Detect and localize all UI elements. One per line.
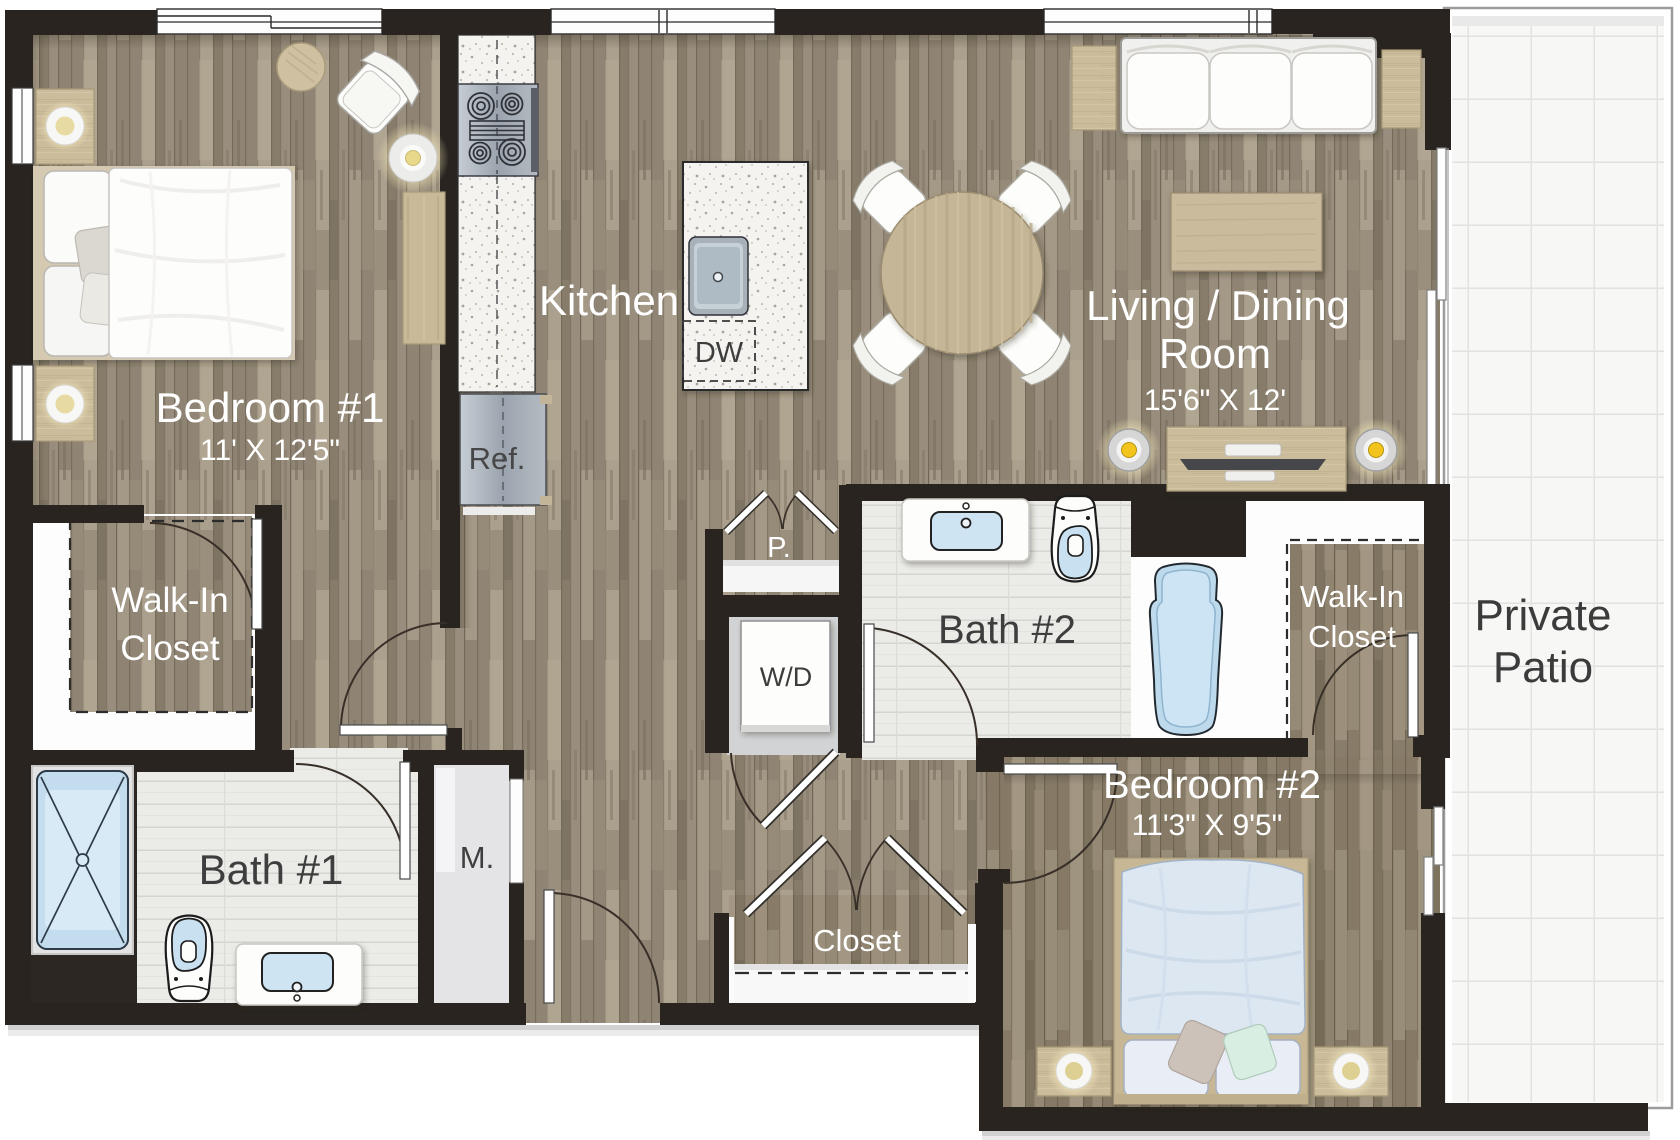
- svg-text:Walk-In: Walk-In: [111, 581, 228, 620]
- svg-text:Walk-In: Walk-In: [1300, 579, 1404, 614]
- svg-text:M.: M.: [460, 840, 494, 875]
- svg-text:Private: Private: [1475, 591, 1612, 640]
- svg-text:Patio: Patio: [1493, 643, 1593, 692]
- svg-text:Closet: Closet: [120, 629, 219, 668]
- svg-text:Living / Dining: Living / Dining: [1086, 282, 1350, 329]
- svg-text:W/D: W/D: [760, 662, 812, 692]
- svg-text:15'6" X 12': 15'6" X 12': [1144, 384, 1286, 417]
- svg-text:Closet: Closet: [813, 923, 901, 958]
- svg-text:Kitchen: Kitchen: [539, 277, 679, 324]
- svg-text:Bath #1: Bath #1: [199, 846, 344, 893]
- svg-text:Closet: Closet: [1308, 619, 1396, 654]
- svg-text:Ref.: Ref.: [469, 441, 526, 476]
- svg-text:Bath #2: Bath #2: [938, 608, 1076, 652]
- svg-text:Bedroom #1: Bedroom #1: [156, 384, 385, 431]
- svg-text:Bedroom #2: Bedroom #2: [1103, 763, 1321, 807]
- svg-text:11' X 12'5": 11' X 12'5": [200, 434, 340, 467]
- svg-text:11'3" X 9'5": 11'3" X 9'5": [1132, 809, 1283, 842]
- svg-text:P.: P.: [767, 532, 791, 564]
- svg-text:Room: Room: [1159, 330, 1271, 377]
- svg-text:DW: DW: [695, 337, 744, 369]
